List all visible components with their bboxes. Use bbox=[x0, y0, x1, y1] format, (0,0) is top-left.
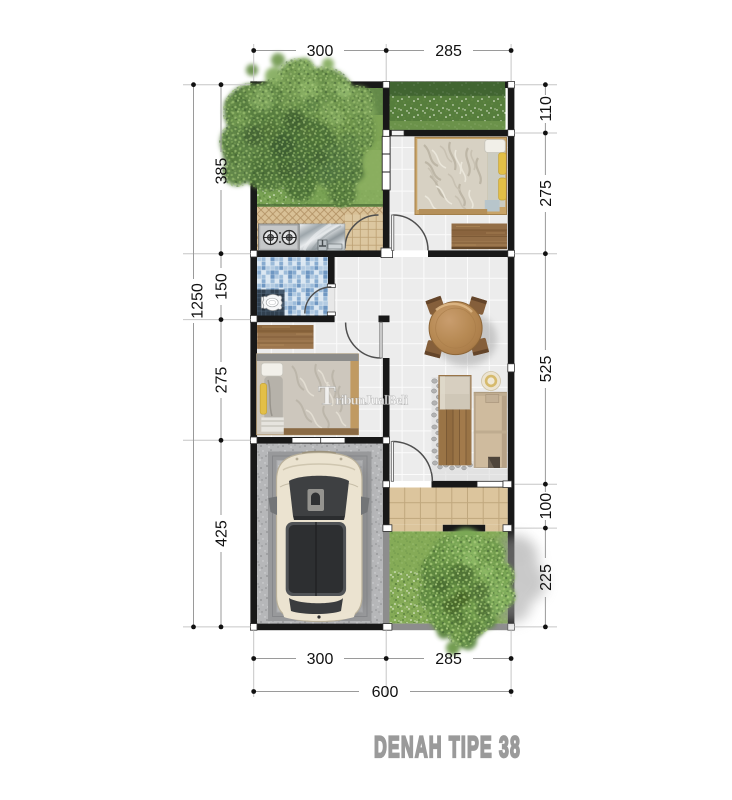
svg-text:275: 275 bbox=[538, 180, 555, 207]
svg-text:1250: 1250 bbox=[190, 283, 207, 319]
svg-text:600: 600 bbox=[372, 684, 399, 701]
svg-text:225: 225 bbox=[538, 564, 555, 591]
svg-text:425: 425 bbox=[214, 520, 231, 547]
svg-text:285: 285 bbox=[435, 43, 462, 60]
svg-text:300: 300 bbox=[307, 651, 334, 668]
svg-text:110: 110 bbox=[538, 96, 555, 122]
svg-text:275: 275 bbox=[214, 367, 231, 394]
svg-text:300: 300 bbox=[307, 43, 334, 60]
svg-text:525: 525 bbox=[538, 356, 555, 383]
svg-text:100: 100 bbox=[538, 493, 555, 520]
svg-text:DENAH TIPE 38: DENAH TIPE 38 bbox=[374, 731, 521, 764]
svg-text:150: 150 bbox=[214, 273, 231, 300]
svg-text:385: 385 bbox=[214, 158, 231, 185]
svg-text:285: 285 bbox=[435, 651, 462, 668]
